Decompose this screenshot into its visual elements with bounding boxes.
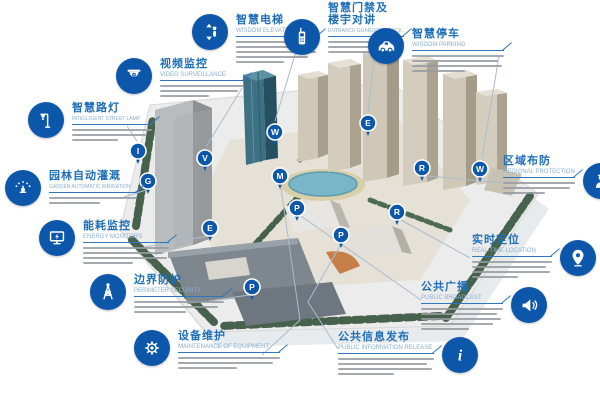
callout-subtitle: INTELLIGENT STREET LAMP (72, 115, 152, 123)
megaphone-icon (511, 287, 547, 323)
street-lamp-icon (28, 102, 64, 138)
elevator-icon (192, 14, 228, 50)
svg-text:G: G (145, 176, 152, 186)
callout-title: 能耗监控 (83, 220, 169, 232)
callout-subtitle: REAL-TIME LOCATION (472, 247, 552, 255)
callout-street-lamp: 智慧路灯 INTELLIGENT STREET LAMP (28, 102, 152, 141)
callout-subtitle: GARDEN AUTOMATIC IRRIGATION (49, 183, 137, 191)
sprinkler-icon (5, 170, 41, 206)
callout-wisdom-parking: 智慧停车 WISDOM PARKING (368, 28, 504, 72)
callout-title: 智慧门禁及楼宇对讲 (328, 2, 390, 26)
callout-desc (503, 182, 575, 194)
callout-video-surveillance: 视频监控 VIDEO SURVEILLANCE (116, 58, 244, 97)
callout-subtitle: VIDEO SURVEILLANCE (160, 71, 244, 79)
svg-text:E: E (365, 118, 371, 128)
watchtower-icon (90, 274, 126, 310)
callout-desc (134, 301, 224, 313)
location-pin-icon (560, 240, 596, 276)
callout-perimeter-security: 边界防护 PERIMETER SECURITY (90, 274, 224, 313)
callout-desc (472, 261, 552, 278)
smart-community-infographic: { "palette":{"accent":"#0d57aa","title_b… (0, 0, 600, 400)
svg-text:M: M (276, 171, 283, 181)
callout-desc (338, 358, 434, 375)
callout-energy-monitors: 能耗监控 ENERGY MONITORS (39, 220, 169, 264)
gear-wrench-icon (134, 330, 170, 366)
svg-text:P: P (294, 203, 300, 213)
callout-maintenance: 设备维护 MAINTENANCE OF EQUIPMENT (134, 330, 280, 369)
callout-garden-irrigation: 园林自动灌溉 GARDEN AUTOMATIC IRRIGATION (5, 170, 137, 206)
svg-text:R: R (419, 163, 425, 173)
callout-desc (72, 129, 152, 141)
pool (289, 172, 357, 196)
callout-desc (83, 247, 169, 264)
callout-public-info-release: i 公共信息发布 PUBLIC INFORMATION RELEASE (338, 331, 478, 375)
callout-subtitle: PUBLIC BROADCAST (421, 294, 503, 302)
intercom-icon (284, 19, 320, 55)
callout-public-broadcast: 公共广播 PUBLIC BROADCAST (421, 281, 547, 330)
callout-title: 智慧路灯 (72, 102, 152, 114)
svg-text:W: W (476, 164, 485, 174)
callout-subtitle: PERIMETER SECURITY (134, 287, 224, 295)
callout-subtitle: PUBLIC INFORMATION RELEASE (338, 344, 434, 352)
car-icon (368, 28, 404, 64)
callout-desc (178, 357, 280, 369)
callout-regional-protection: 区域布防 REGIONAL PROTECTION (503, 155, 600, 199)
callout-title: 公共信息发布 (338, 331, 434, 343)
callout-desc (412, 55, 504, 72)
callout-title: 视频监控 (160, 58, 244, 70)
info-icon: i (442, 337, 478, 373)
callout-desc (421, 308, 503, 330)
svg-text:i: i (458, 348, 463, 365)
callout-title: 边界防护 (134, 274, 224, 286)
callout-subtitle: REGIONAL PROTECTION (503, 168, 575, 176)
callout-title: 区域布防 (503, 155, 575, 167)
svg-text:I: I (137, 146, 139, 156)
svg-text:W: W (271, 127, 280, 137)
callout-subtitle: WISDOM PARKING (412, 41, 504, 49)
svg-text:P: P (249, 282, 255, 292)
callout-title: 园林自动灌溉 (49, 170, 137, 182)
glass-tower (243, 70, 278, 165)
callout-desc (49, 197, 137, 204)
callout-subtitle: ENERGY MONITORS (83, 233, 169, 241)
monitor-icon (39, 220, 75, 256)
svg-text:E: E (207, 223, 213, 233)
callout-title: 公共广播 (421, 281, 503, 293)
svg-text:R: R (394, 207, 400, 217)
callout-title: 智慧停车 (412, 28, 504, 40)
svg-text:V: V (202, 153, 208, 163)
dome-camera-icon (116, 58, 152, 94)
callout-desc (160, 85, 244, 97)
callout-real-time-location: 实时定位 REAL-TIME LOCATION (472, 234, 596, 278)
callout-title: 实时定位 (472, 234, 552, 246)
callout-subtitle: MAINTENANCE OF EQUIPMENT (178, 343, 280, 351)
callout-title: 设备维护 (178, 330, 280, 342)
svg-text:P: P (338, 230, 344, 240)
guard-icon (583, 163, 600, 199)
